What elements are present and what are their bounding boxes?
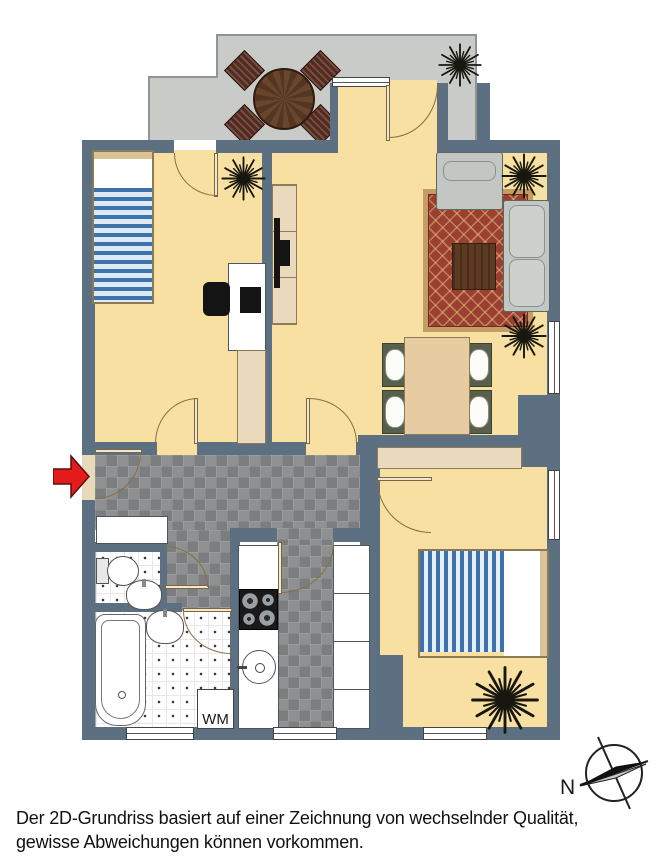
bathroom-sink <box>146 610 184 644</box>
wall-left-lower <box>82 500 95 740</box>
disclaimer-text: Der 2D-Grundriss basiert auf einer Zeich… <box>16 806 660 855</box>
wc-sink <box>126 580 162 610</box>
armchair <box>436 152 503 210</box>
floor-plan: WM <box>0 0 666 868</box>
sideboard <box>377 447 522 469</box>
balcony-railing <box>148 76 150 140</box>
double-bed-cover <box>420 551 504 652</box>
desk-chair <box>203 282 230 316</box>
entrance-arrow-icon <box>53 453 91 500</box>
wall-balcony-right <box>477 83 490 140</box>
disclaimer-line-1: Der 2D-Grundriss basiert auf einer Zeich… <box>16 806 660 830</box>
computer-monitor <box>240 287 261 313</box>
balcony-bay-window <box>332 77 390 87</box>
coffee-table <box>452 243 496 290</box>
single-bed <box>92 150 154 304</box>
plant-icon <box>220 155 267 202</box>
kitchen-counter-right <box>333 545 370 729</box>
wall-dining-bottom <box>358 435 522 447</box>
balcony-railing <box>216 34 218 78</box>
balcony-table <box>253 68 315 130</box>
wall-kitchen-top-2 <box>333 528 377 542</box>
tv-stand <box>280 240 290 266</box>
washing-machine-label: WM <box>202 711 229 728</box>
balcony-floor <box>148 76 218 140</box>
wall-top-mid <box>216 140 332 153</box>
dining-table <box>404 337 470 435</box>
wall-bay-left <box>330 83 338 153</box>
living-window <box>548 321 560 394</box>
wardrobe <box>237 350 266 444</box>
wall-kitchen-top-1 <box>230 528 277 542</box>
wall-bay-right <box>437 83 448 153</box>
kitchen-sink <box>242 650 276 684</box>
plant-icon <box>437 42 483 88</box>
bathroom-window <box>126 727 194 740</box>
hallway-cabinet <box>96 516 168 544</box>
wall-bedroom-right-corner <box>368 655 403 727</box>
plant-icon <box>500 312 548 360</box>
kitchen-counter-left <box>238 545 279 729</box>
disclaimer-line-2: gewisse Abweichungen können vorkommen. <box>16 830 660 854</box>
plant-icon <box>500 152 548 200</box>
kitchen-window <box>273 727 337 740</box>
plant-icon <box>466 664 544 736</box>
balcony-railing <box>148 76 218 78</box>
compass-icon <box>576 731 652 811</box>
bedroom-right-window <box>548 470 560 540</box>
balcony-railing <box>216 34 477 36</box>
stove <box>239 589 278 630</box>
bathtub <box>95 614 146 726</box>
wall-right-block <box>518 395 560 467</box>
sofa <box>503 200 550 312</box>
compass-north-label: N <box>560 776 575 800</box>
washing-machine: WM <box>197 689 234 729</box>
